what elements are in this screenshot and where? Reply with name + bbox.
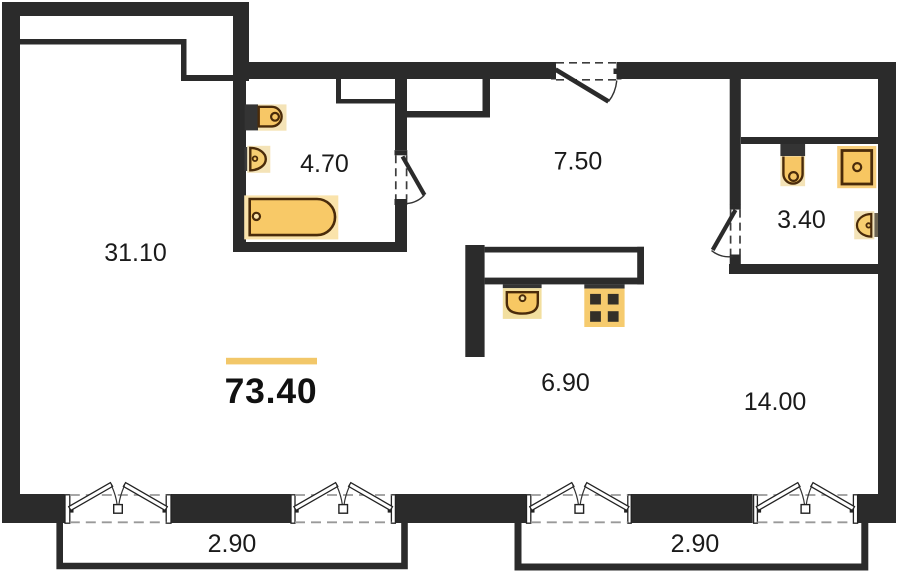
svg-text:14.00: 14.00 <box>744 388 807 416</box>
svg-text:31.10: 31.10 <box>104 239 167 267</box>
svg-text:73.40: 73.40 <box>225 371 318 411</box>
svg-text:6.90: 6.90 <box>541 369 590 397</box>
svg-text:3.40: 3.40 <box>777 206 826 234</box>
svg-text:7.50: 7.50 <box>554 148 603 176</box>
svg-text:2.90: 2.90 <box>671 530 720 558</box>
svg-text:2.90: 2.90 <box>208 530 257 558</box>
svg-text:4.70: 4.70 <box>300 150 349 178</box>
